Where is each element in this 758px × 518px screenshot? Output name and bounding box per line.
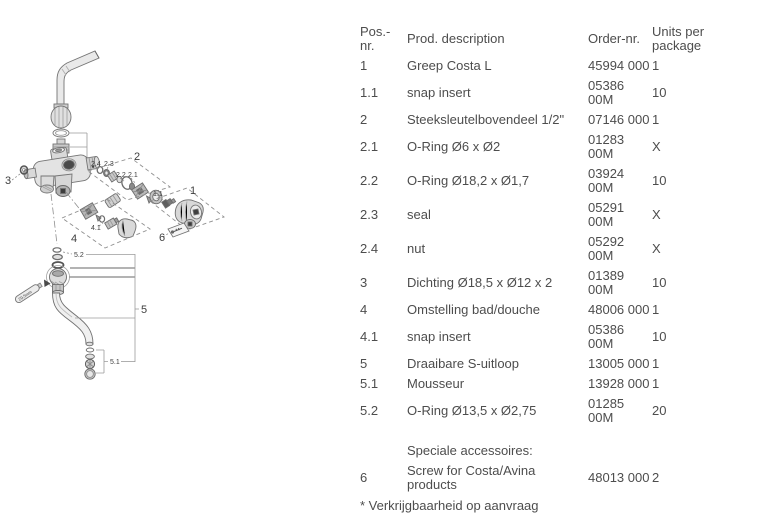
- cell-order: 01283 00M: [588, 130, 652, 164]
- col-header-pos: Pos.-nr.: [360, 22, 407, 56]
- parts-list-panel: Pos.-nr. Prod. description Order-nr. Uni…: [360, 22, 732, 513]
- callout-2-1: 2.1: [128, 172, 138, 179]
- cell-pos: 3: [360, 266, 407, 300]
- cell-order: 48006 000: [588, 300, 652, 320]
- cell-pos: 5.2: [360, 394, 407, 428]
- cell-units: X: [652, 130, 724, 164]
- part-diverter-group-4: [80, 203, 136, 238]
- cell-pos: 5.1: [360, 374, 407, 394]
- cell-pos: 2.2: [360, 164, 407, 198]
- spacer-row: [360, 428, 724, 441]
- section-heading: Speciale accessoires:: [407, 441, 588, 461]
- cell-pos: 6: [360, 461, 407, 495]
- table-row: 5.2 O-Ring Ø13,5 x Ø2,75 01285 00M 20: [360, 394, 724, 428]
- cell-units: 10: [652, 266, 724, 300]
- callout-1: 1: [190, 185, 196, 197]
- exploded-diagram: 29,5mm 3 2 2.4 2.3 2.2 2.1 1 1.1 4 4.1 6: [0, 0, 360, 518]
- callout-6: 6: [159, 232, 165, 244]
- cell-pos: 4.1: [360, 320, 407, 354]
- table-row: 1 Greep Costa L 45994 000 1: [360, 56, 724, 76]
- availability-footnote: * Verkrijgbaarheid op aanvraag: [360, 498, 732, 513]
- part-body: [21, 142, 102, 197]
- callout-2-2: 2.2: [116, 172, 126, 179]
- cell-order: [588, 441, 652, 461]
- cell-desc: Draaibare S-uitloop: [407, 354, 588, 374]
- table-row: 2.1 O-Ring Ø6 x Ø2 01283 00M X: [360, 130, 724, 164]
- callout-5: 5: [141, 304, 147, 316]
- part-wrench-tool: 29,5mm: [14, 280, 50, 304]
- col-header-units: Units per package: [652, 22, 724, 56]
- table-row: 4.1 snap insert 05386 00M 10: [360, 320, 724, 354]
- centerlines: [51, 192, 82, 244]
- part-spout-group-5: [47, 248, 94, 346]
- cell-desc: O-Ring Ø18,2 x Ø1,7: [407, 164, 588, 198]
- callout-2-4: 2.4: [91, 161, 101, 168]
- table-row-section: Speciale accessoires:: [360, 441, 724, 461]
- cell-units: 2: [652, 461, 724, 495]
- cell-pos: 4: [360, 300, 407, 320]
- cell-units: 1: [652, 110, 724, 130]
- table-row: 5.1 Mousseur 13928 000 1: [360, 374, 724, 394]
- cell-desc: O-Ring Ø13,5 x Ø2,75: [407, 394, 588, 428]
- callout-1-1: 1.1: [153, 191, 163, 198]
- part-bent-pipe: [57, 51, 99, 104]
- callout-4-1: 4.1: [91, 225, 101, 232]
- table-row: 5 Draaibare S-uitloop 13005 000 1: [360, 354, 724, 374]
- cell-order: 01285 00M: [588, 394, 652, 428]
- cell-units: 10: [652, 164, 724, 198]
- table-row: 2 Steeksleutelbovendeel 1/2" 07146 000 1: [360, 110, 724, 130]
- parts-table: Pos.-nr. Prod. description Order-nr. Uni…: [360, 22, 724, 495]
- callout-5-1: 5.1: [110, 359, 120, 366]
- cell-desc: seal: [407, 198, 588, 232]
- cell-pos: 2.4: [360, 232, 407, 266]
- cell-order: 45994 000: [588, 56, 652, 76]
- cell-order: 07146 000: [588, 110, 652, 130]
- table-header-row: Pos.-nr. Prod. description Order-nr. Uni…: [360, 22, 724, 56]
- callout-5-2: 5.2: [74, 252, 84, 259]
- cell-desc: Dichting Ø18,5 x Ø12 x 2: [407, 266, 588, 300]
- col-header-order: Order-nr.: [588, 22, 652, 56]
- cell-units: X: [652, 232, 724, 266]
- col-header-desc: Prod. description: [407, 22, 588, 56]
- callout-2: 2: [134, 151, 140, 163]
- callout-4: 4: [71, 233, 77, 245]
- cell-units: 20: [652, 394, 724, 428]
- cell-units: X: [652, 198, 724, 232]
- cell-order: 05386 00M: [588, 76, 652, 110]
- cell-desc: snap insert: [407, 320, 588, 354]
- cell-units: 10: [652, 320, 724, 354]
- cell-pos: 1.1: [360, 76, 407, 110]
- cell-order: 03924 00M: [588, 164, 652, 198]
- cell-desc: Screw for Costa/Avina products: [407, 461, 588, 495]
- leader-lines-5: [69, 254, 139, 373]
- table-row: 1.1 snap insert 05386 00M 10: [360, 76, 724, 110]
- cell-desc: Steeksleutelbovendeel 1/2": [407, 110, 588, 130]
- cell-desc: Mousseur: [407, 374, 588, 394]
- callout-3: 3: [5, 175, 11, 187]
- cell-pos: 5: [360, 354, 407, 374]
- cell-desc: snap insert: [407, 76, 588, 110]
- cell-order: 05292 00M: [588, 232, 652, 266]
- cell-pos: 2: [360, 110, 407, 130]
- table-row: 4 Omstelling bad/douche 48006 000 1: [360, 300, 724, 320]
- cell-units: 1: [652, 300, 724, 320]
- table-row: 2.4 nut 05292 00M X: [360, 232, 724, 266]
- cell-units: 1: [652, 374, 724, 394]
- part-mousseur-5-1: [85, 348, 95, 379]
- cell-order: 48013 000: [588, 461, 652, 495]
- cell-units: 10: [652, 76, 724, 110]
- cell-pos: [360, 441, 407, 461]
- cell-order: 05291 00M: [588, 198, 652, 232]
- cell-order: 13928 000: [588, 374, 652, 394]
- cell-units: 1: [652, 56, 724, 76]
- cell-desc: Greep Costa L: [407, 56, 588, 76]
- cell-desc: O-Ring Ø6 x Ø2: [407, 130, 588, 164]
- cell-desc: Omstelling bad/douche: [407, 300, 588, 320]
- cell-desc: nut: [407, 232, 588, 266]
- table-row: 6 Screw for Costa/Avina products 48013 0…: [360, 461, 724, 495]
- part-diverter-knob: [118, 219, 136, 238]
- cell-order: 13005 000: [588, 354, 652, 374]
- part-s-spout-tube: [53, 293, 94, 344]
- table-row: 3 Dichting Ø18,5 x Ø12 x 2 01389 00M 10: [360, 266, 724, 300]
- cell-pos: 2.3: [360, 198, 407, 232]
- cell-units: [652, 441, 724, 461]
- cell-order: 05386 00M: [588, 320, 652, 354]
- callout-2-3: 2.3: [104, 161, 114, 168]
- table-row: 2.2 O-Ring Ø18,2 x Ø1,7 03924 00M 10: [360, 164, 724, 198]
- cell-pos: 2.1: [360, 130, 407, 164]
- table-row: 2.3 seal 05291 00M X: [360, 198, 724, 232]
- cell-order: 01389 00M: [588, 266, 652, 300]
- cell-units: 1: [652, 354, 724, 374]
- cell-pos: 1: [360, 56, 407, 76]
